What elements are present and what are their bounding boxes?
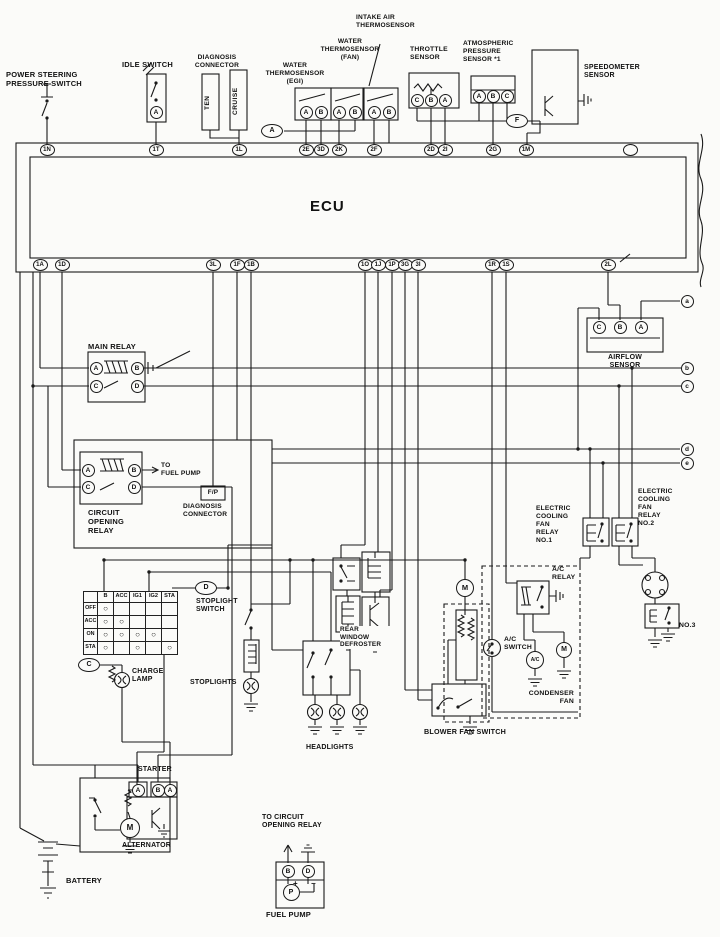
ecu-pin-2F: 2F — [367, 144, 382, 156]
edge-ref-c: c — [681, 380, 694, 393]
starter-label: STARTER — [138, 766, 186, 774]
junction-ref-F: F — [506, 114, 528, 128]
table-row: STA ○ ○ ○ — [84, 642, 178, 655]
ecu-pin-1J: 1J — [371, 259, 386, 271]
cooling-fan-relay1-label: ELECTRIC COOLING FAN RELAY NO.1 — [536, 505, 582, 545]
ac-relay-label: A/C RELAY — [552, 566, 588, 582]
throttle-terminal-a: A — [439, 94, 452, 107]
edge-ref-d: d — [681, 443, 694, 456]
ecu-pin-unlabeled — [623, 144, 638, 156]
ac-compressor-clutch: A/C — [526, 651, 544, 669]
power-steering-pressure-switch-label: POWER STEERING PRESSURE SWITCH — [6, 70, 118, 88]
ecu-pin-1S: 1S — [499, 259, 514, 271]
cor-terminal-c: C — [82, 481, 95, 494]
contact-cell: ○ — [146, 629, 162, 642]
cooling-fan-relay2-label: ELECTRIC COOLING FAN RELAY NO.2 — [638, 488, 684, 528]
table-row: B ACC IG1 IG2 STA — [84, 592, 178, 603]
ten-connector-label: TEN — [204, 80, 211, 126]
contact-cell: ○ — [98, 642, 114, 655]
col-header-b: B — [98, 592, 114, 603]
table-row: ACC ○ ○ — [84, 616, 178, 629]
contact-cell — [114, 642, 130, 655]
cor-terminal-b: B — [128, 464, 141, 477]
fuel-pump-terminal-d: D — [302, 865, 315, 878]
airflow-terminal-a: A — [635, 321, 648, 334]
junction-ref-A: A — [261, 124, 283, 138]
main-relay-terminal-b: B — [131, 362, 144, 375]
fuel-pump-minus-sign: − — [311, 879, 321, 889]
contact-cell: ○ — [98, 616, 114, 629]
ecu-pin-3L: 3L — [206, 259, 221, 271]
idle-switch-terminal-a: A — [150, 106, 163, 119]
stoplights-label: STOPLIGHTS — [190, 679, 242, 687]
main-relay-terminal-a: A — [90, 362, 103, 375]
atmospheric-terminal-a: A — [473, 90, 486, 103]
contact-cell: ○ — [114, 616, 130, 629]
contact-cell — [146, 642, 162, 655]
starter-motor: M — [120, 818, 140, 838]
fp-connector-label: F/P — [201, 489, 225, 497]
row-label-acc: ACC — [84, 616, 98, 629]
circuit-opening-relay-label: CIRCUIT OPENING RELAY — [88, 508, 148, 535]
edge-ref-e: e — [681, 457, 694, 470]
ecu-pin-1F: 1F — [230, 259, 245, 271]
contact-cell — [162, 616, 178, 629]
throttle-terminal-b: B — [425, 94, 438, 107]
to-circuit-opening-relay-label: TO CIRCUIT OPENING RELAY — [262, 814, 342, 831]
table-row: OFF ○ — [84, 603, 178, 616]
row-label-on: ON — [84, 629, 98, 642]
contact-cell: ○ — [162, 642, 178, 655]
atmospheric-pressure-sensor-label: ATMOSPHERIC PRESSURE SENSOR *1 — [463, 40, 529, 64]
ecu-pin-1N: 1N — [40, 144, 55, 156]
contact-cell: ○ — [130, 629, 146, 642]
fan-sensor-terminal-a: A — [333, 106, 346, 119]
edge-ref-a: a — [681, 295, 694, 308]
contact-cell — [130, 616, 146, 629]
contact-cell — [114, 603, 130, 616]
egi-sensor-terminal-b: B — [315, 106, 328, 119]
cor-terminal-a: A — [82, 464, 95, 477]
alternator-terminal-a1: A — [132, 784, 145, 797]
fuel-pump-label: FUEL PUMP — [266, 910, 334, 919]
ecu-pin-2K: 2K — [332, 144, 347, 156]
contact-cell — [146, 616, 162, 629]
blower-fan-switch-label: BLOWER FAN SWITCH — [424, 728, 534, 737]
col-header-ig2: IG2 — [146, 592, 162, 603]
ecu-pin-1R: 1R — [485, 259, 500, 271]
ecu-label: ECU — [310, 198, 370, 216]
contact-cell — [146, 603, 162, 616]
row-label-off: OFF — [84, 603, 98, 616]
fuel-pump-motor: P — [283, 884, 300, 901]
water-thermosensor-egi-label: WATER THERMOSENSOR (EGI) — [252, 62, 338, 86]
contact-cell — [162, 629, 178, 642]
main-relay-terminal-c: C — [90, 380, 103, 393]
junction-ref-C: C — [78, 658, 100, 672]
airflow-terminal-b: B — [614, 321, 627, 334]
edge-ref-b: b — [681, 362, 694, 375]
ecu-pin-1D: 1D — [55, 259, 70, 271]
main-relay-label: MAIN RELAY — [88, 342, 158, 351]
relay-no3-label: NO.3 — [679, 622, 713, 630]
blower-fan-motor: M — [456, 579, 474, 597]
ecu-pin-2D: 2D — [424, 144, 439, 156]
junction-ref-D: D — [195, 581, 217, 595]
condenser-fan-motor: M — [556, 642, 572, 658]
ac-switch-label: A/C SWITCH — [504, 636, 548, 652]
throttle-sensor-label: THROTTLE SENSOR — [410, 46, 468, 62]
diagnosis-connector-label: DIAGNOSIS CONNECTOR — [186, 54, 248, 70]
wiring-diagram-page: POWER STEERING PRESSURE SWITCH IDLE SWIT… — [0, 0, 720, 937]
throttle-terminal-c: C — [411, 94, 424, 107]
fuel-pump-terminal-b: B — [282, 865, 295, 878]
rear-window-defroster-label: REAR WINDOW DEFROSTER — [340, 626, 400, 649]
idle-switch-label: IDLE SWITCH — [122, 60, 192, 69]
table-row: ON ○ ○ ○ ○ — [84, 629, 178, 642]
ecu-pin-1B: 1B — [244, 259, 259, 271]
fp-diagnosis-connector-label: DIAGNOSIS CONNECTOR — [183, 503, 253, 519]
ecu-pin-2I: 2I — [438, 144, 453, 156]
contact-cell: ○ — [114, 629, 130, 642]
row-label-sta: STA — [84, 642, 98, 655]
contact-cell — [162, 603, 178, 616]
intake-sensor-terminal-b: B — [383, 106, 396, 119]
main-relay-terminal-d: D — [131, 380, 144, 393]
speedometer-sensor-label: SPEEDOMETER SENSOR — [584, 64, 668, 81]
ecu-pin-1A: 1A — [33, 259, 48, 271]
ecu-pin-3I: 3I — [411, 259, 426, 271]
to-fuel-pump-label: TO FUEL PUMP — [161, 462, 221, 478]
contact-cell: ○ — [98, 629, 114, 642]
intake-air-thermosensor-label: INTAKE AIR THERMOSENSOR — [356, 14, 440, 30]
airflow-terminal-c: C — [593, 321, 606, 334]
table-corner — [84, 592, 98, 603]
condenser-fan-label: CONDENSER FAN — [516, 690, 574, 706]
airflow-sensor-label: AIRFLOW SENSOR — [586, 354, 664, 371]
charge-lamp-label: CHARGE LAMP — [132, 668, 184, 685]
atmospheric-terminal-b: B — [487, 90, 500, 103]
atmospheric-terminal-c: C — [501, 90, 514, 103]
ecu-pin-2E: 2E — [299, 144, 314, 156]
col-header-ig1: IG1 — [130, 592, 146, 603]
wiring-svg — [0, 0, 720, 937]
cor-terminal-d: D — [128, 481, 141, 494]
ecu-pin-1L: 1L — [232, 144, 247, 156]
ecu-pin-3D: 3D — [314, 144, 329, 156]
fan-sensor-terminal-b: B — [349, 106, 362, 119]
alternator-terminal-a2: A — [164, 784, 177, 797]
headlights-label: HEADLIGHTS — [306, 744, 376, 752]
battery-label: BATTERY — [66, 876, 116, 885]
contact-cell — [130, 603, 146, 616]
contact-cell: ○ — [98, 603, 114, 616]
col-header-acc: ACC — [114, 592, 130, 603]
stoplight-switch-label: STOPLIGHT SWITCH — [196, 598, 254, 615]
ecu-pin-1T: 1T — [149, 144, 164, 156]
cruise-connector-label: CRUISE — [232, 74, 239, 128]
contact-cell: ○ — [130, 642, 146, 655]
col-header-sta: STA — [162, 592, 178, 603]
ignition-switch-table: B ACC IG1 IG2 STA OFF ○ ACC ○ ○ ON ○ ○ ○… — [83, 591, 178, 655]
intake-sensor-terminal-a: A — [368, 106, 381, 119]
water-thermosensor-fan-label: WATER THERMOSENSOR (FAN) — [312, 38, 388, 62]
ecu-pin-1M: 1M — [519, 144, 534, 156]
ecu-pin-2G: 2G — [486, 144, 501, 156]
alternator-label: ALTERNATOR — [122, 842, 184, 850]
alternator-terminal-b: B — [152, 784, 165, 797]
ecu-pin-2L: 2L — [601, 259, 616, 271]
egi-sensor-terminal-a: A — [300, 106, 313, 119]
